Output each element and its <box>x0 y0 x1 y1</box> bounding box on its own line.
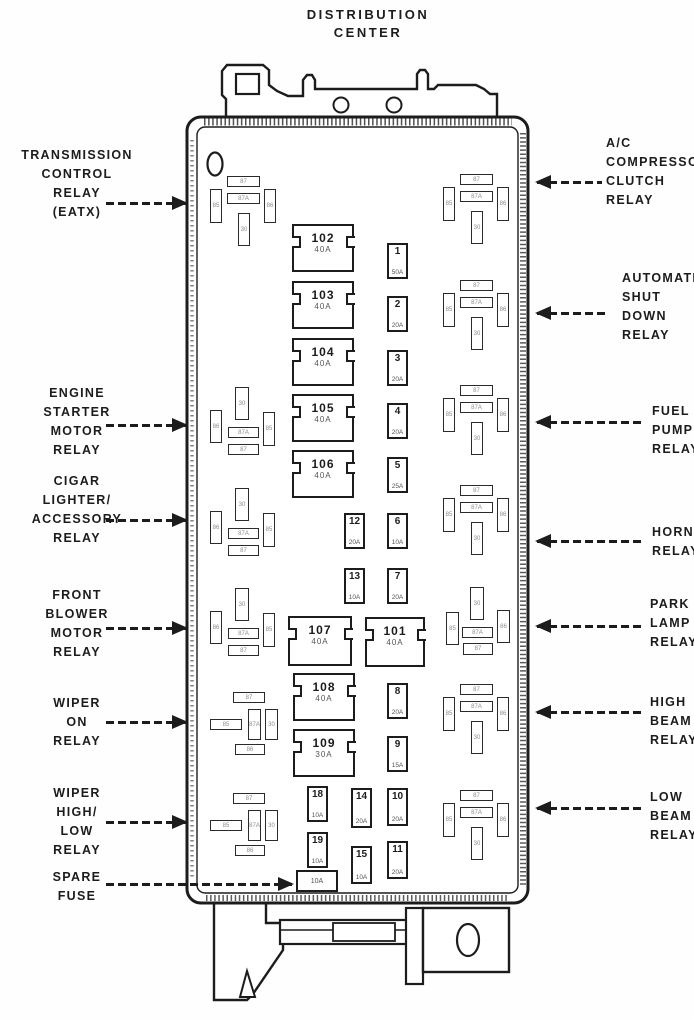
top-bracket-hole-right <box>387 98 402 113</box>
relay-terminal-86: 86 <box>235 744 265 755</box>
label-line: CIGAR <box>4 472 150 491</box>
relay-terminal-87: 87 <box>460 174 493 185</box>
arrow-park-lamp-relay <box>537 625 645 628</box>
relay-terminal-87: 87 <box>460 790 493 801</box>
fuse-109: 10930A <box>293 729 355 777</box>
fuse-amp-rating: 15A <box>392 762 404 769</box>
fuse-number: 101 <box>367 625 423 638</box>
arrow-engine-starter-motor-relay <box>106 424 186 427</box>
fuse-11: 1120A <box>387 841 408 879</box>
fuse-14: 1420A <box>351 788 372 828</box>
fuse-2: 220A <box>387 296 408 332</box>
fuse-amp-rating: 40A <box>290 637 350 647</box>
fuse-amp-rating: 20A <box>392 816 404 823</box>
arrowhead-right <box>172 196 188 210</box>
fuse-notch-left <box>293 741 302 753</box>
arrowhead-left <box>535 705 551 719</box>
relay-terminal-87A: 87A <box>460 502 493 513</box>
title-line-1: DISTRIBUTION <box>288 6 448 24</box>
relay-terminal-86: 86 <box>497 498 509 532</box>
fuse-notch-left <box>365 629 374 641</box>
relay-terminal-87A: 87A <box>227 193 260 204</box>
arrow-cigar-lighter-accessory-relay <box>106 519 186 522</box>
fuse-amp-rating: 20A <box>392 709 404 716</box>
label-line: COMPRESSOR <box>606 153 694 172</box>
relay-terminal-87: 87 <box>228 545 259 556</box>
arrowhead-right <box>172 621 188 635</box>
label-horn-relay: HORNRELAY <box>652 523 694 561</box>
arrowhead-left <box>535 801 551 815</box>
fuse-amp-rating: 40A <box>294 359 352 369</box>
relay-terminal-87: 87 <box>233 692 265 703</box>
fuse-18: 1810A <box>307 786 328 822</box>
label-line: RELAY <box>622 326 694 345</box>
fuse-amp-rating: 40A <box>295 694 353 704</box>
relay-terminal-85: 85 <box>443 803 455 837</box>
label-line: BEAM <box>650 712 694 731</box>
label-line: HORN <box>652 523 694 542</box>
fuse-number: 105 <box>294 402 352 415</box>
arrowhead-right <box>278 877 294 891</box>
relay-terminal-87A: 87A <box>460 297 493 308</box>
relay-terminal-85: 85 <box>210 189 222 223</box>
fuse-amp-rating: 20A <box>392 322 404 329</box>
label-line: RELAY <box>650 826 694 845</box>
fuse-amp-rating: 10A <box>356 874 368 881</box>
relay-terminal-30: 30 <box>471 211 483 244</box>
arrowhead-right <box>172 513 188 527</box>
fuse-notch-left <box>293 685 302 697</box>
fuse-105: 10540A <box>292 394 354 442</box>
label-line: RELAY <box>4 441 150 460</box>
relay-terminal-87: 87 <box>228 645 259 656</box>
relay-terminal-86: 86 <box>497 398 509 432</box>
label-line: RELAY <box>4 184 150 203</box>
label-line: PUMP <box>652 421 694 440</box>
fuse-number: 8 <box>395 687 401 697</box>
fuse-6: 610A <box>387 513 408 549</box>
label-line: LOW <box>650 788 694 807</box>
relay-terminal-87A: 87A <box>228 528 259 539</box>
label-line: LIGHTER/ <box>4 491 150 510</box>
fuse-amp-rating: 30A <box>295 750 353 760</box>
label-park-lamp-relay: PARKLAMPRELAY <box>650 595 694 652</box>
fuse-number: 7 <box>395 572 401 582</box>
fuse-number: 3 <box>395 354 401 364</box>
fuse-number: 13 <box>349 572 360 582</box>
relay-terminal-87: 87 <box>460 280 493 291</box>
relay-terminal-87: 87 <box>463 643 493 655</box>
fuse-notch-right <box>346 293 355 305</box>
fuse-notch-left <box>288 628 297 640</box>
fuse-3: 320A <box>387 350 408 386</box>
relay-terminal-86: 86 <box>497 697 509 731</box>
fuse-number: 104 <box>294 346 352 359</box>
relay-terminal-85: 85 <box>263 513 275 547</box>
fuse-amp-rating: 25A <box>392 483 404 490</box>
relay-terminal-87A: 87A <box>248 810 261 841</box>
fuse-amp-rating: 40A <box>294 415 352 425</box>
fuse-notch-right <box>346 406 355 418</box>
relay-terminal-30: 30 <box>238 213 250 246</box>
title-line-2: CENTER <box>288 24 448 42</box>
fuse-5: 525A <box>387 457 408 493</box>
arrowhead-left <box>535 415 551 429</box>
fuse-amp-rating: 20A <box>349 539 361 546</box>
relay-terminal-30: 30 <box>265 709 278 740</box>
label-line: WIPER <box>4 784 150 803</box>
fuse-number: 18 <box>312 790 323 800</box>
fuse-8: 820A <box>387 683 408 719</box>
fuse-notch-left <box>292 462 301 474</box>
fuse-notch-left <box>292 293 301 305</box>
fuse-12: 1220A <box>344 513 365 549</box>
arrow-automatic-shut-down-relay <box>537 312 606 315</box>
relay-terminal-86: 86 <box>264 189 276 223</box>
fuse-number: 9 <box>395 740 401 750</box>
relay-terminal-87A: 87A <box>228 427 259 438</box>
fuse-number: 4 <box>395 407 401 417</box>
relay-terminal-87: 87 <box>227 176 260 187</box>
fuse-notch-right <box>346 236 355 248</box>
fuse-102: 10240A <box>292 224 354 272</box>
label-high-beam-relay: HIGHBEAMRELAY <box>650 693 694 750</box>
relay-terminal-85: 85 <box>443 498 455 532</box>
fuse-amp-rating: 20A <box>356 818 368 825</box>
fuse-amp-rating: 20A <box>392 429 404 436</box>
label-line: A/C <box>606 134 694 153</box>
label-cigar-lighter-accessory-relay: CIGARLIGHTER/ACCESSORYRELAY <box>4 472 150 548</box>
fuse-number: 2 <box>395 300 401 310</box>
fuse-notch-right <box>346 350 355 362</box>
fuse-number: 107 <box>290 624 350 637</box>
fuse-number: 1 <box>395 247 401 257</box>
top-bracket-hole-left <box>334 98 349 113</box>
fuse-amp-rating: 20A <box>392 594 404 601</box>
relay-terminal-86: 86 <box>210 511 222 544</box>
label-line: (EATX) <box>4 203 150 222</box>
fuse-1: 150A <box>387 243 408 279</box>
label-line: WIPER <box>4 694 150 713</box>
relay-terminal-86: 86 <box>497 187 509 221</box>
label-line: CONTROL <box>4 165 150 184</box>
fuse-number: 5 <box>395 461 401 471</box>
label-line: PARK <box>650 595 694 614</box>
label-line: RELAY <box>4 732 150 751</box>
arrow-fuel-pump-relay <box>537 421 645 424</box>
fuse-number: 14 <box>356 792 367 802</box>
fuse-107: 10740A <box>288 616 352 666</box>
relay-terminal-85: 85 <box>210 719 242 730</box>
arrow-spare-fuse <box>106 883 292 886</box>
label-fuel-pump-relay: FUELPUMPRELAY <box>652 402 694 459</box>
relay-terminal-87: 87 <box>228 444 259 455</box>
relay-terminal-86: 86 <box>497 293 509 327</box>
fuse-10: 1020A <box>387 788 408 826</box>
fuse-amp-rating: 40A <box>294 302 352 312</box>
fuse-7: 720A <box>387 568 408 604</box>
label-line: RELAY <box>650 633 694 652</box>
relay-terminal-30: 30 <box>471 317 483 350</box>
fuse-103: 10340A <box>292 281 354 329</box>
arrow-front-blower-motor-relay <box>106 627 186 630</box>
relay-terminal-86: 86 <box>210 410 222 443</box>
arrowhead-left <box>535 175 551 189</box>
fuse-108: 10840A <box>293 673 355 721</box>
arrow-high-beam-relay <box>537 711 645 714</box>
label-line: RELAY <box>4 643 150 662</box>
fuse-number: 11 <box>392 845 403 855</box>
top-bracket <box>222 65 497 122</box>
fuse-number: 10 <box>392 792 403 802</box>
fuse-notch-left <box>292 406 301 418</box>
label-automatic-shut-down-relay: AUTOMATICSHUTDOWNRELAY <box>622 269 694 345</box>
fuse-number: 15 <box>356 850 367 860</box>
fuse-13: 1310A <box>344 568 365 604</box>
label-line: FUSE <box>4 887 150 906</box>
bottom-bracket-post <box>406 908 423 984</box>
relay-terminal-85: 85 <box>263 412 275 446</box>
fuse-notch-right <box>344 628 353 640</box>
relay-terminal-85: 85 <box>443 398 455 432</box>
label-front-blower-motor-relay: FRONTBLOWERMOTORRELAY <box>4 586 150 662</box>
fuse-number: 106 <box>294 458 352 471</box>
arrowhead-left <box>535 619 551 633</box>
relay-terminal-30: 30 <box>471 721 483 754</box>
fuse-amp-rating: 10A <box>312 812 324 819</box>
relay-terminal-30: 30 <box>235 588 249 621</box>
relay-terminal-87A: 87A <box>248 709 261 740</box>
label-line: RELAY <box>4 841 150 860</box>
fuse-4: 420A <box>387 403 408 439</box>
arrow-wiper-high-low-relay <box>106 821 186 824</box>
fuse-106: 10640A <box>292 450 354 498</box>
relay-terminal-85: 85 <box>263 613 275 647</box>
fuse-notch-right <box>347 685 356 697</box>
relay-terminal-30: 30 <box>471 522 483 555</box>
fuse-number: 6 <box>395 517 401 527</box>
relay-terminal-86: 86 <box>497 610 510 643</box>
fuse-notch-right <box>347 741 356 753</box>
label-transmission-control-relay: TRANSMISSIONCONTROLRELAY(EATX) <box>4 146 150 222</box>
fuse-amp-rating: 10A <box>349 594 361 601</box>
bottom-bracket-hole <box>457 924 479 956</box>
label-line: CLUTCH <box>606 172 694 191</box>
relay-terminal-87A: 87A <box>228 628 259 639</box>
relay-terminal-87A: 87A <box>462 627 493 638</box>
fuse-amp-rating: 10A <box>392 539 404 546</box>
spare-fuse: 10A <box>296 870 338 892</box>
relay-terminal-87A: 87A <box>460 402 493 413</box>
label-ac-compressor-clutch-relay: A/CCOMPRESSORCLUTCHRELAY <box>606 134 694 210</box>
label-line: DOWN <box>622 307 694 326</box>
relay-terminal-87: 87 <box>460 485 493 496</box>
label-line: TRANSMISSION <box>4 146 150 165</box>
label-line: HIGH/ <box>4 803 150 822</box>
fuse-amp-rating: 20A <box>392 376 404 383</box>
label-line: RELAY <box>606 191 694 210</box>
label-line: RELAY <box>650 731 694 750</box>
relay-terminal-87: 87 <box>460 684 493 695</box>
label-line: FUEL <box>652 402 694 421</box>
relay-terminal-85: 85 <box>446 612 459 645</box>
relay-terminal-86: 86 <box>497 803 509 837</box>
label-line: RELAY <box>652 440 694 459</box>
arrow-low-beam-relay <box>537 807 645 810</box>
fuse-number: 109 <box>295 737 353 750</box>
label-line: STARTER <box>4 403 150 422</box>
label-line: BEAM <box>650 807 694 826</box>
arrow-transmission-control-relay <box>106 202 186 205</box>
arrowhead-left <box>535 534 551 548</box>
label-line: AUTOMATIC <box>622 269 694 288</box>
fuse-9: 915A <box>387 736 408 772</box>
diagram-title: DISTRIBUTION CENTER <box>288 6 448 42</box>
fuse-amp-rating: 20A <box>392 869 404 876</box>
relay-terminal-86: 86 <box>210 611 222 644</box>
fuse-number: 108 <box>295 681 353 694</box>
arrowhead-left <box>535 306 551 320</box>
label-line: HIGH <box>650 693 694 712</box>
relay-terminal-30: 30 <box>265 810 278 841</box>
label-line: RELAY <box>652 542 694 561</box>
fuse-amp-rating: 40A <box>294 245 352 255</box>
arrowhead-right <box>172 418 188 432</box>
arrow-horn-relay <box>537 540 645 543</box>
relay-terminal-30: 30 <box>471 827 483 860</box>
label-line: RELAY <box>4 529 150 548</box>
fuse-amp-rating: 40A <box>294 471 352 481</box>
relay-terminal-87: 87 <box>460 385 493 396</box>
relay-terminal-30: 30 <box>235 387 249 420</box>
arrowhead-right <box>172 815 188 829</box>
label-spare-fuse: SPAREFUSE <box>4 868 150 906</box>
label-line: ENGINE <box>4 384 150 403</box>
label-low-beam-relay: LOWBEAMRELAY <box>650 788 694 845</box>
fuse-amp-rating: 10A <box>312 858 324 865</box>
fuse-number: 103 <box>294 289 352 302</box>
relay-terminal-86: 86 <box>235 845 265 856</box>
relay-terminal-87: 87 <box>233 793 265 804</box>
distribution-center-diagram: DISTRIBUTION CENTER TRANSMISSIONCONTROLR… <box>0 0 694 1020</box>
arrowhead-right <box>172 715 188 729</box>
relay-terminal-30: 30 <box>471 422 483 455</box>
fuse-notch-right <box>346 462 355 474</box>
label-engine-starter-motor-relay: ENGINESTARTERMOTORRELAY <box>4 384 150 460</box>
relay-terminal-30: 30 <box>235 488 249 521</box>
label-line: SHUT <box>622 288 694 307</box>
fuse-amp-rating: 50A <box>392 269 404 276</box>
fuse-amp-rating: 40A <box>367 638 423 648</box>
label-line: BLOWER <box>4 605 150 624</box>
fuse-15: 1510A <box>351 846 372 884</box>
fuse-104: 10440A <box>292 338 354 386</box>
label-line: LOW <box>4 822 150 841</box>
fuse-101: 10140A <box>365 617 425 667</box>
fuse-notch-left <box>292 350 301 362</box>
label-line: FRONT <box>4 586 150 605</box>
label-line: LAMP <box>650 614 694 633</box>
arrow-ac-compressor-clutch-relay <box>537 181 602 184</box>
fuse-number: 19 <box>312 836 323 846</box>
fuse-19: 1910A <box>307 832 328 868</box>
relay-terminal-85: 85 <box>443 187 455 221</box>
relay-terminal-30: 30 <box>470 587 484 620</box>
bottom-bracket-rail-center <box>333 923 395 941</box>
arrow-wiper-on-relay <box>106 721 186 724</box>
relay-terminal-87A: 87A <box>460 807 493 818</box>
relay-terminal-87A: 87A <box>460 701 493 712</box>
fuse-amp-rating: 10A <box>311 878 323 885</box>
fuse-number: 102 <box>294 232 352 245</box>
fuse-number: 12 <box>349 517 360 527</box>
fuse-notch-left <box>292 236 301 248</box>
relay-terminal-85: 85 <box>443 697 455 731</box>
fuse-notch-right <box>417 629 426 641</box>
relay-terminal-85: 85 <box>443 293 455 327</box>
relay-terminal-85: 85 <box>210 820 242 831</box>
relay-terminal-87A: 87A <box>460 191 493 202</box>
